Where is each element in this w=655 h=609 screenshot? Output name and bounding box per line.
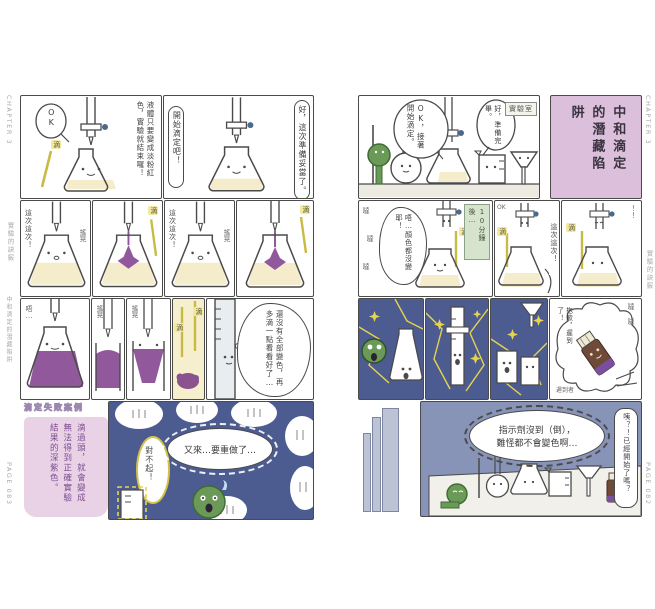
shake-sfx: 搖晃 bbox=[221, 229, 231, 242]
worry-bubble: 唔…顏色都沒變耶！ bbox=[379, 207, 427, 285]
flask-splash-illustration bbox=[93, 201, 162, 296]
comic-spread: CHAPTER 3 實驗的訣竅 中和滴定的潛藏陷阱 PAGE 083 CHAPT… bbox=[0, 0, 655, 609]
side-text: 這次這次！ bbox=[167, 209, 176, 249]
drip-label: 滴 bbox=[148, 206, 158, 215]
bar-shape bbox=[363, 433, 371, 512]
drip-label: 滴 bbox=[174, 323, 184, 332]
left-panel-start: 開始滴定吧！ 好，這次準備妥當了。 bbox=[163, 95, 314, 199]
caption-text: 液體只要變成淡粉紅色，實驗就結束囉！ bbox=[135, 101, 155, 191]
left-panel-drip-2: 滴 bbox=[92, 200, 163, 297]
late-caption: 遲到者 bbox=[556, 385, 574, 394]
murmur-sfx: 唔… bbox=[24, 305, 34, 320]
ok-bubble-text: OK bbox=[45, 108, 56, 128]
flask-buret-illustration bbox=[164, 96, 313, 198]
shock-net-illustration bbox=[426, 299, 488, 399]
redo-bubble-text: 又來…要重做了… bbox=[184, 443, 256, 456]
left-edge-page: PAGE 083 bbox=[5, 462, 13, 505]
right-dark-panel-3 bbox=[490, 298, 548, 400]
redo-bubble: 又來…要重做了… bbox=[167, 428, 273, 470]
left-panel-drip-1: 這次這次！ 搖晃 bbox=[20, 200, 91, 297]
alert-sfx: ！！ bbox=[627, 205, 637, 219]
right-edge-page: PAGE 082 bbox=[644, 462, 652, 505]
left-edge-chapter: CHAPTER 3 bbox=[5, 95, 13, 145]
flask-splash-illustration bbox=[237, 201, 313, 296]
shock-net-illustration bbox=[491, 299, 547, 399]
left-panel-purple-flask: 唔… bbox=[20, 298, 90, 400]
ready-bubble-text: 好，準備完畢。 bbox=[483, 105, 502, 147]
bar-shape bbox=[382, 408, 399, 512]
bottle-reply-bubble: 咦？！已經開始了嗎？ bbox=[614, 408, 638, 508]
time-skip-box: 10分鐘後… bbox=[464, 204, 490, 260]
right-edge-chapter: CHAPTER 3 bbox=[644, 95, 652, 145]
shake-sfx: 搖晃 bbox=[94, 305, 104, 318]
left-panel-purple-slice-1: 搖晃 bbox=[91, 298, 125, 400]
left-panel-ok-explain: OK 滴 液體只要變成淡粉紅色，實驗就結束囉！ bbox=[20, 95, 162, 199]
shake-sfx: 搖晃 bbox=[129, 305, 139, 318]
shake-sfx: 搖晃 bbox=[77, 229, 87, 242]
left-edge-header: 實驗的訣竅 bbox=[5, 222, 15, 262]
right-panel-keep-dripping: 滴 ！！ bbox=[561, 200, 642, 297]
left-edge-section: 中和滴定的潛藏陷阱 bbox=[4, 296, 13, 364]
speech-bubble: 開始滴定吧！ bbox=[168, 106, 184, 188]
right-panel-late-bottle: 抱歉，遲到了！ 噠 噠 遲到者 bbox=[549, 298, 642, 400]
infobox-body-text: 滴過頭，就會變成無法得到正確實驗結果的深紫色。 bbox=[46, 423, 87, 511]
bar-shape bbox=[372, 417, 381, 512]
ok-sfx: OK bbox=[497, 204, 506, 211]
bottle-reply-text: 咦？！已經開始了嗎？ bbox=[621, 413, 630, 503]
right-panel-no-change: 噠 噠 噠 唔…顏色都沒變耶！ 滴 10分鐘後… bbox=[358, 200, 493, 297]
left-panel-drop-closeup: 滴 滴 bbox=[172, 298, 205, 400]
infobox-title: 滴定失敗案例 bbox=[24, 402, 84, 413]
sorry-bubble-text: 對不起！ bbox=[143, 446, 154, 498]
retry-text: 這次這次！ bbox=[549, 223, 558, 275]
realization-line2: 難怪都不會變色啊… bbox=[496, 436, 577, 449]
side-text: 這次這次！ bbox=[23, 209, 32, 249]
worry-text: 唔…顏色都沒變耶！ bbox=[394, 214, 413, 278]
drip-sfx: 噠 bbox=[361, 207, 371, 214]
realization-line1: 指示劑沒到（倒）， bbox=[499, 423, 576, 436]
speech-bubble: 好，這次準備妥當了。 bbox=[294, 100, 310, 199]
right-edge-header: 實驗的訣竅 bbox=[644, 250, 654, 290]
left-panel-drip-3: 這次這次！ 搖晃 bbox=[164, 200, 235, 297]
thought-bubble: 還沒有全部變色，再多滴一點看看好了… bbox=[237, 303, 311, 397]
drip-label: 滴 bbox=[300, 205, 310, 214]
shock-net-illustration bbox=[359, 299, 423, 399]
running-sfx: 噠 噠 bbox=[626, 303, 636, 325]
right-dark-panel-2 bbox=[425, 298, 489, 400]
left-panel-purple-slice-2: 搖晃 bbox=[126, 298, 171, 400]
right-panel-lab-lineup: OK，接著開始滴定。 好，準備完畢。 實驗室 bbox=[358, 95, 540, 199]
episode-title-panel: 中和滴定的潛藏陷阱 bbox=[550, 95, 642, 199]
drip-label: 滴 bbox=[193, 307, 203, 316]
late-bubble-text: 抱歉，遲到了！ bbox=[555, 307, 573, 351]
left-panel-redo-shock: 對不起！ 又來…要重做了… bbox=[108, 401, 314, 520]
episode-title: 中和滴定的潛藏陷阱 bbox=[565, 105, 627, 189]
lab-sign: 實驗室 bbox=[505, 102, 537, 116]
drip-label: 滴 bbox=[566, 223, 576, 232]
infobox-beaker: 滴過頭，就會變成無法得到正確實驗結果的深紫色。 bbox=[24, 417, 108, 517]
left-panel-drip-4: 滴 bbox=[236, 200, 314, 297]
right-dark-panel-1 bbox=[358, 298, 424, 400]
drip-label: 滴 bbox=[51, 140, 61, 149]
thought-text: 還沒有全部變色，再多滴一點看看好了… bbox=[264, 310, 284, 390]
left-panel-buret-thinking: 還沒有全部變色，再多滴一點看看好了… bbox=[206, 298, 314, 400]
right-panel-retry: OK 滴 這次這次！ bbox=[494, 200, 560, 297]
drip-sfx: 噠 bbox=[365, 235, 375, 242]
drip-sfx: 噠 bbox=[361, 263, 371, 270]
right-panel-realization: 指示劑沒到（倒）， 難怪都不會變色啊… 咦？！已經開始了嗎？ bbox=[420, 401, 642, 517]
realization-bubble: 指示劑沒到（倒）， 難怪都不會變色啊… bbox=[469, 410, 605, 462]
ok-start-bubble-text: OK，接著開始滴定。 bbox=[405, 104, 425, 154]
drip-label: 滴 bbox=[497, 227, 507, 236]
